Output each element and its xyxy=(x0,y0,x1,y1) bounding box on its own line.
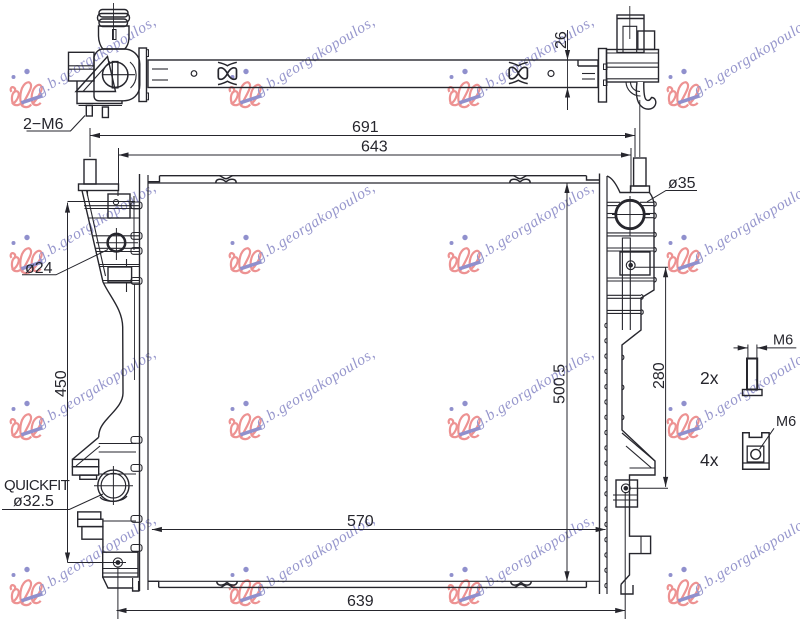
svg-text:2x: 2x xyxy=(700,368,719,388)
svg-text:ø24: ø24 xyxy=(25,260,53,277)
svg-text:450: 450 xyxy=(53,370,70,397)
svg-text:M6: M6 xyxy=(773,333,793,349)
svg-text:4x: 4x xyxy=(700,450,719,470)
svg-text:ø35: ø35 xyxy=(668,175,696,192)
svg-text:2−M6: 2−M6 xyxy=(23,116,64,133)
svg-text:691: 691 xyxy=(352,119,379,136)
svg-text:QUICKFIT: QUICKFIT xyxy=(4,477,70,494)
svg-text:M6: M6 xyxy=(776,414,796,430)
svg-text:26: 26 xyxy=(553,31,570,49)
svg-text:639: 639 xyxy=(347,593,374,610)
svg-text:643: 643 xyxy=(361,139,388,156)
svg-text:ø32.5: ø32.5 xyxy=(13,493,54,510)
svg-text:280: 280 xyxy=(651,362,668,389)
svg-text:500.5: 500.5 xyxy=(552,364,569,404)
svg-text:570: 570 xyxy=(347,513,374,530)
